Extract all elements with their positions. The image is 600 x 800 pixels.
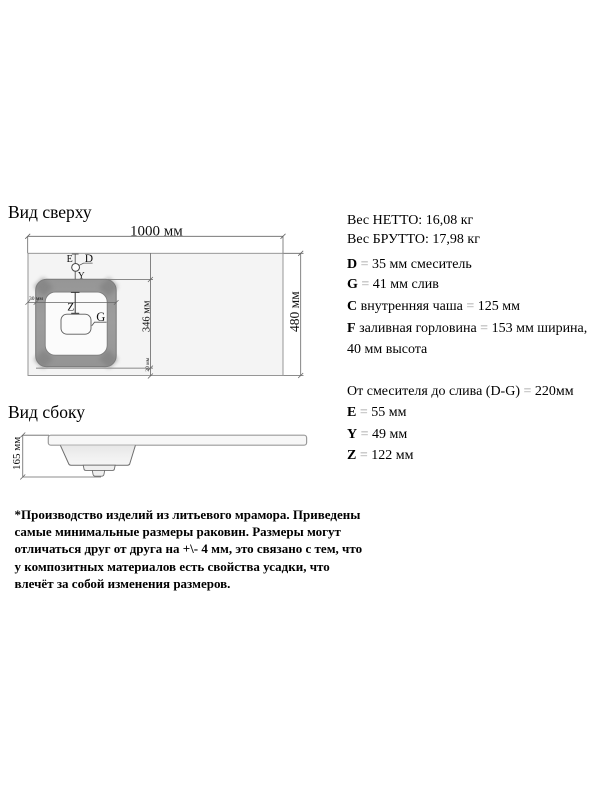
svg-text:E: E xyxy=(67,254,73,265)
svg-text:30 мм: 30 мм xyxy=(29,296,43,302)
svg-text:Z: Z xyxy=(67,302,74,314)
svg-text:1000 мм: 1000 мм xyxy=(130,224,183,240)
svg-text:165 мм: 165 мм xyxy=(11,437,23,470)
svg-text:480 мм: 480 мм xyxy=(287,291,302,332)
svg-text:Y: Y xyxy=(78,272,85,282)
svg-text:346 мм: 346 мм xyxy=(142,300,153,332)
svg-text:30 мм: 30 мм xyxy=(145,357,151,371)
svg-text:G: G xyxy=(96,310,105,324)
svg-text:D: D xyxy=(85,253,93,265)
